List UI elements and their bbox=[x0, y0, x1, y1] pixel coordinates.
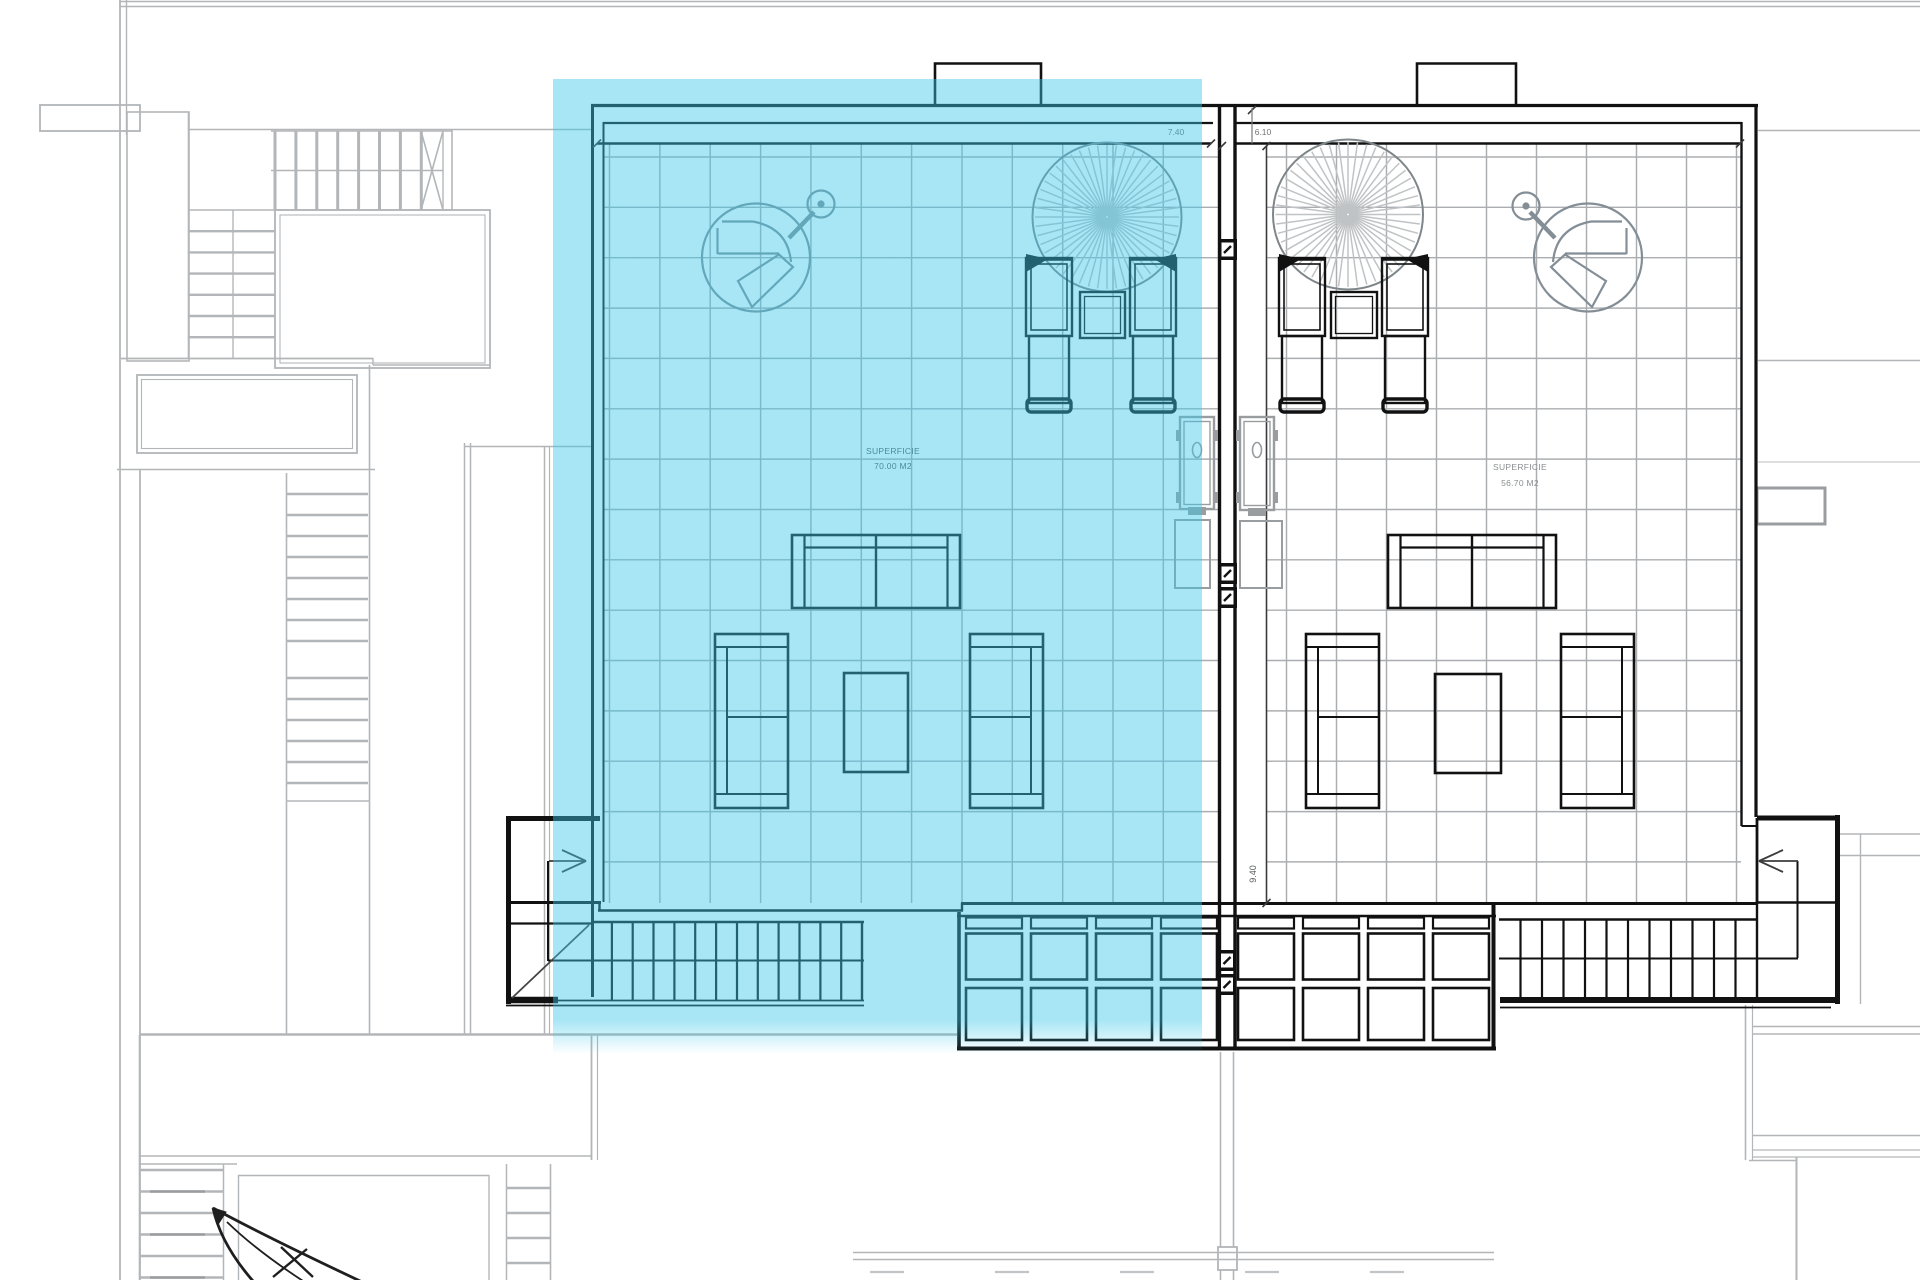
svg-text:9.40: 9.40 bbox=[1248, 865, 1258, 883]
svg-text:SUPERFICIE: SUPERFICIE bbox=[1493, 462, 1547, 472]
svg-text:56.70 M2: 56.70 M2 bbox=[1501, 478, 1539, 488]
svg-text:6.10: 6.10 bbox=[1255, 127, 1272, 137]
